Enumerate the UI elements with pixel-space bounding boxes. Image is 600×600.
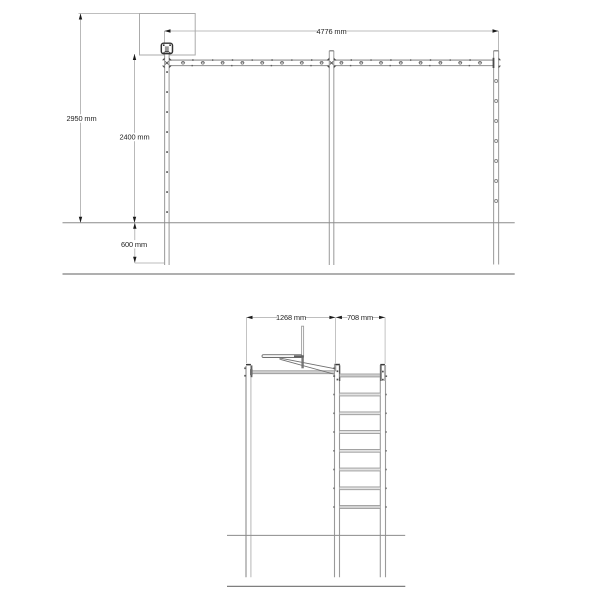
svg-text:2400 mm: 2400 mm (119, 133, 149, 142)
svg-text:4776 mm: 4776 mm (316, 27, 346, 36)
svg-text:708 mm: 708 mm (347, 313, 373, 322)
svg-text:600 mm: 600 mm (121, 240, 147, 249)
svg-text:2950 mm: 2950 mm (66, 114, 96, 123)
svg-text:1268 mm: 1268 mm (276, 313, 306, 322)
